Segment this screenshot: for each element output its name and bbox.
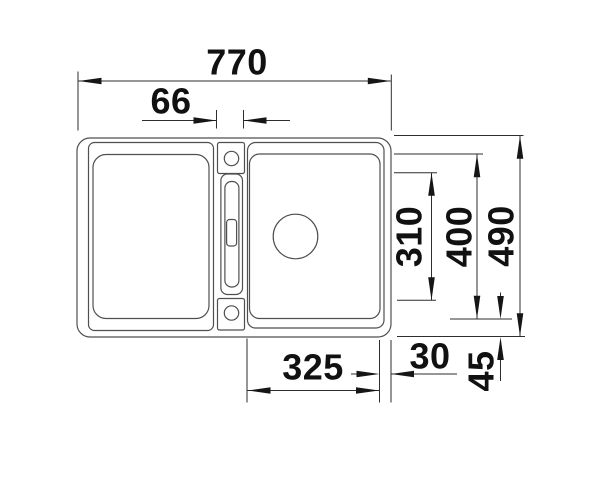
arrow-66-right — [244, 117, 267, 123]
dimension-labels-group: 770 66 310 400 490 325 30 45 — [150, 42, 521, 392]
sink-outline-group — [77, 138, 391, 337]
dim-label-tap-ledge-width: 66 — [150, 81, 191, 122]
arrow-325-left — [248, 387, 271, 393]
dim-label-bowl-width: 325 — [282, 347, 344, 388]
arrow-770-left — [79, 78, 102, 84]
right-bowl-outer-edge — [248, 143, 385, 329]
sink-technical-drawing: 770 66 310 400 490 325 30 45 — [0, 0, 608, 482]
arrow-66-left — [194, 117, 217, 123]
arrow-490-down — [517, 313, 524, 336]
dim-label-overall-height: 490 — [481, 205, 522, 267]
bottom-hole — [224, 306, 238, 320]
dim-label-right-edge-offset: 30 — [409, 336, 450, 377]
dim-label-bottom-edge-offset: 45 — [461, 350, 502, 391]
arrow-30-left — [357, 371, 380, 377]
tap-hole — [224, 151, 238, 165]
technical-drawing-canvas: 770 66 310 400 490 325 30 45 — [0, 0, 608, 482]
arrow-770-right — [368, 78, 391, 84]
arrow-310-up — [428, 173, 435, 196]
arrow-45-down — [497, 296, 504, 319]
arrow-310-down — [428, 277, 435, 300]
dim-label-bowl-height: 400 — [439, 206, 480, 268]
left-bowl-inner-edge — [93, 155, 209, 319]
arrow-400-up — [474, 154, 481, 177]
tap-ledge-bottom — [218, 299, 245, 331]
right-bowl-inner-edge — [250, 154, 381, 319]
arrow-325-right — [356, 387, 379, 393]
left-bowl-outer-edge — [89, 143, 214, 331]
arrow-490-up — [517, 136, 524, 159]
dim-label-right-inner-height: 310 — [389, 206, 430, 268]
dim-label-overall-width: 770 — [206, 42, 268, 83]
arrow-400-down — [474, 296, 481, 319]
drain-circle — [273, 214, 318, 259]
tap-ledge-top — [218, 143, 245, 174]
